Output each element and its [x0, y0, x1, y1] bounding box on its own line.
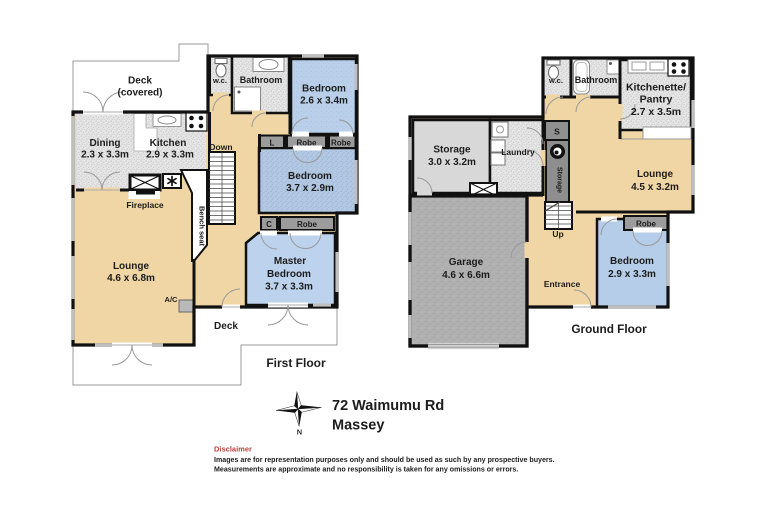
svg-text:w.c.: w.c.	[548, 76, 563, 85]
svg-text:Lounge: Lounge	[637, 169, 674, 180]
svg-text:2.9 x 3.3m: 2.9 x 3.3m	[608, 269, 656, 280]
svg-text:S: S	[554, 127, 560, 137]
svg-text:Lounge: Lounge	[113, 261, 150, 272]
svg-text:Dining: Dining	[89, 138, 120, 149]
svg-text:Robe: Robe	[297, 220, 318, 229]
svg-text:Storage: Storage	[433, 145, 471, 156]
svg-text:Measurements are approximate a: Measurements are approximate and no resp…	[214, 466, 518, 474]
svg-text:Bathroom: Bathroom	[575, 75, 618, 85]
svg-text:w.c.: w.c.	[212, 76, 227, 85]
svg-text:(covered): (covered)	[117, 88, 162, 99]
svg-text:2.6 x 3.4m: 2.6 x 3.4m	[300, 96, 348, 107]
svg-text:Ground Floor: Ground Floor	[571, 322, 647, 336]
svg-text:Robe: Robe	[297, 139, 318, 148]
svg-text:Up: Up	[552, 229, 563, 239]
svg-text:Laundry: Laundry	[501, 147, 535, 157]
svg-text:Robe: Robe	[331, 139, 352, 148]
svg-text:Pantry: Pantry	[640, 94, 673, 106]
svg-text:2.7 x 3.5m: 2.7 x 3.5m	[631, 106, 681, 118]
svg-text:3.0 x 3.2m: 3.0 x 3.2m	[428, 157, 476, 168]
svg-text:N: N	[297, 428, 302, 437]
svg-text:Bedroom: Bedroom	[302, 84, 346, 95]
svg-text:Deck: Deck	[214, 321, 238, 332]
svg-text:4.6 x 6.8m: 4.6 x 6.8m	[107, 273, 155, 284]
svg-text:Deck: Deck	[128, 76, 152, 87]
svg-text:Bedroom: Bedroom	[267, 269, 311, 280]
svg-text:Bathroom: Bathroom	[240, 75, 283, 85]
svg-text:Kitchenette/: Kitchenette/	[626, 82, 686, 94]
svg-text:Master: Master	[274, 256, 306, 267]
svg-text:Disclaimer: Disclaimer	[214, 445, 252, 454]
svg-text:Bedroom: Bedroom	[610, 256, 654, 267]
svg-text:2.9 x 3.3m: 2.9 x 3.3m	[146, 150, 194, 161]
svg-text:Images are for representation: Images are for representation purposes o…	[214, 456, 555, 464]
svg-text:C: C	[266, 220, 272, 229]
svg-text:Kitchen: Kitchen	[150, 138, 187, 149]
svg-text:Massey: Massey	[332, 418, 384, 434]
svg-text:4.6 x 6.6m: 4.6 x 6.6m	[442, 270, 490, 281]
svg-text:3.7 x 2.9m: 3.7 x 2.9m	[286, 183, 334, 194]
svg-text:Storage: Storage	[556, 167, 563, 193]
svg-text:Entrance: Entrance	[544, 279, 581, 289]
svg-text:Robe: Robe	[636, 220, 657, 229]
svg-text:Bench seat: Bench seat	[198, 206, 207, 247]
svg-text:2.3 x 3.3m: 2.3 x 3.3m	[81, 150, 129, 161]
svg-text:3.7 x 3.3m: 3.7 x 3.3m	[265, 282, 313, 293]
svg-text:4.5 x 3.2m: 4.5 x 3.2m	[631, 182, 679, 193]
svg-text:A/C: A/C	[165, 295, 179, 304]
svg-text:72 Waimumu Rd: 72 Waimumu Rd	[332, 398, 444, 414]
svg-text:Bedroom: Bedroom	[288, 171, 332, 182]
svg-text:L: L	[270, 139, 275, 148]
svg-text:First Floor: First Floor	[266, 356, 326, 370]
svg-text:Down: Down	[209, 142, 232, 152]
svg-text:Fireplace: Fireplace	[126, 200, 164, 210]
svg-text:Garage: Garage	[449, 257, 484, 268]
